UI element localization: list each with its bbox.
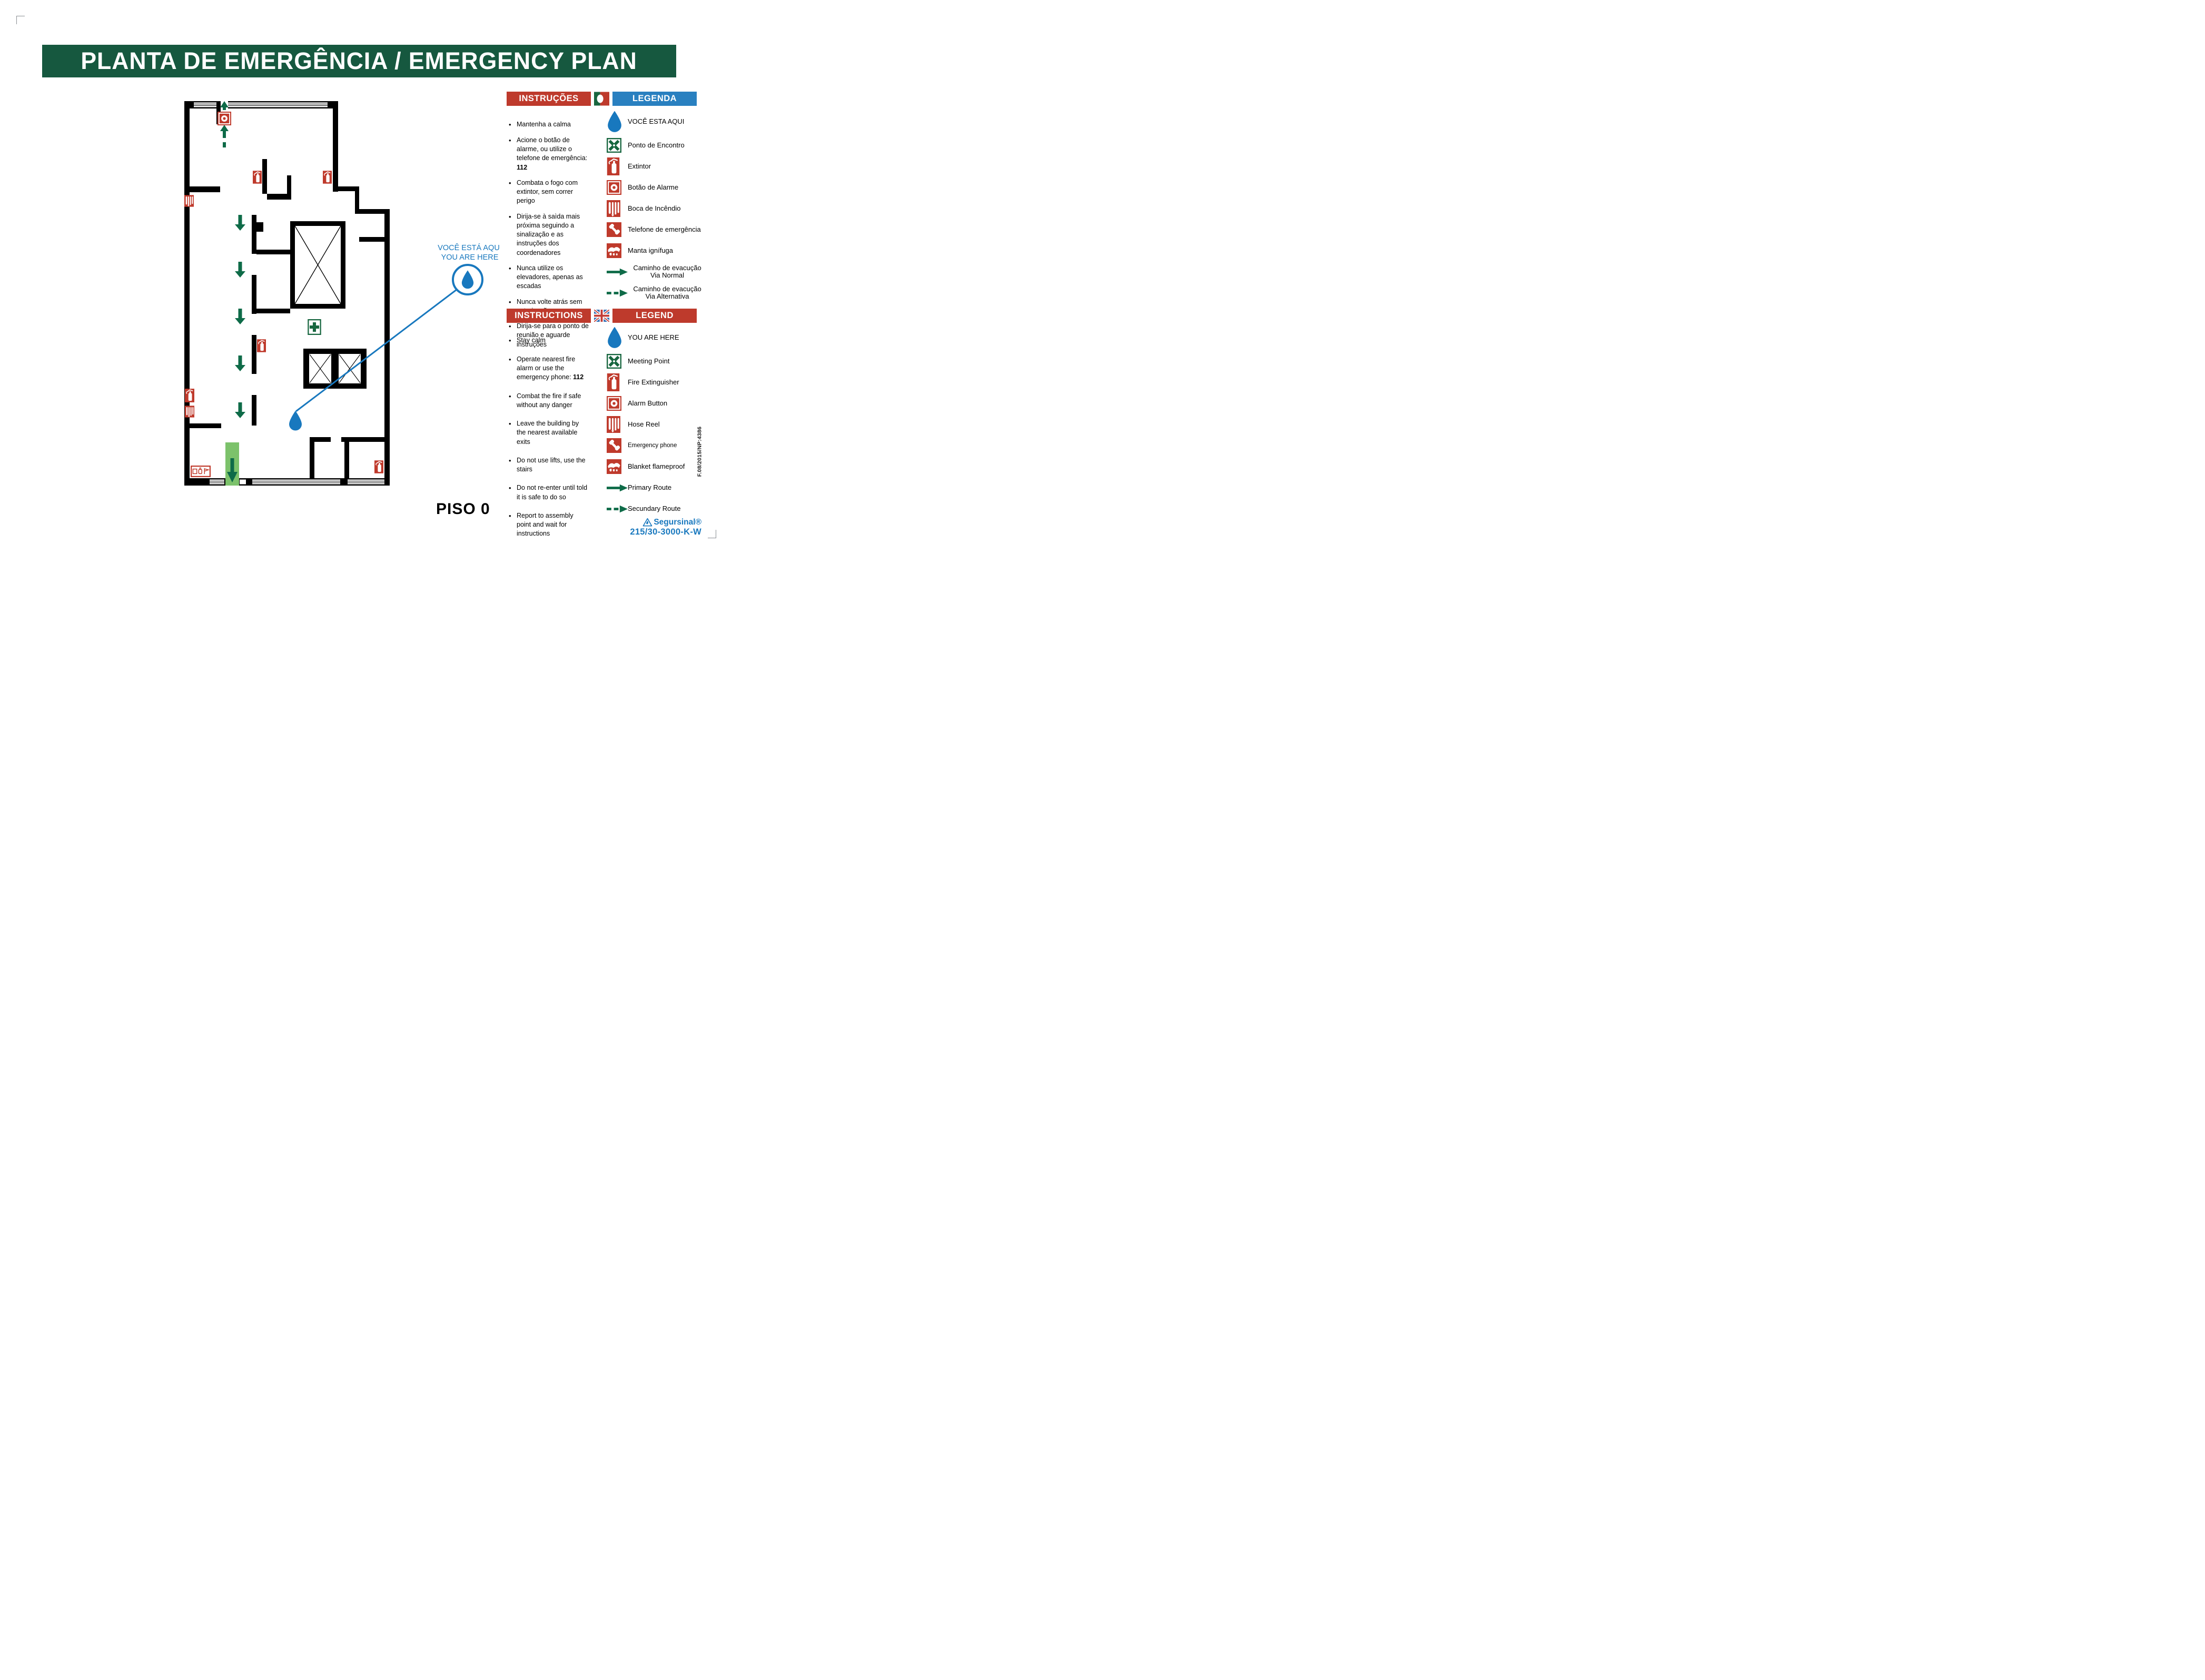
meeting-point-icon	[607, 138, 621, 153]
instruction-text: Operate nearest fire alarm or use the em…	[517, 355, 589, 382]
legend-item: Secundary Route	[607, 498, 720, 519]
fire-extinguisher-icon	[374, 460, 383, 473]
instruction-item: •Mantenha a calma	[509, 120, 589, 130]
meeting-point-icon	[607, 354, 621, 369]
en-legend-banner: LEGEND	[612, 309, 697, 323]
brand-model: 215/30-3000-K-W	[594, 527, 701, 537]
legend-label: YOU ARE HERE	[628, 334, 679, 341]
legend-item: Ponto de Encontro	[607, 135, 720, 156]
legend-label: Manta ignífuga	[628, 247, 673, 254]
legend-item: Extintor	[607, 156, 720, 177]
portugal-flag-icon	[594, 92, 609, 106]
you-are-here-drop-icon	[607, 326, 622, 349]
route-dashed-arrow-icon	[607, 289, 628, 298]
legend-item: Telefone de emergência	[607, 219, 720, 240]
legend-label: Primary Route	[628, 484, 671, 491]
fire-extinguisher-icon	[607, 373, 620, 391]
fire-blanket-icon	[607, 243, 621, 258]
brand-block: Segursinal® 215/30-3000-K-W	[594, 518, 701, 537]
hose-reel-icon	[185, 406, 194, 417]
pt-instructions-banner: INSTRUÇÕES	[507, 92, 591, 106]
fire-extinguisher-icon	[607, 157, 620, 175]
document-code: F.08/2015/NP:4386	[697, 407, 705, 497]
crop-mark-bottom-right	[708, 530, 716, 538]
instruction-text: Acione o botão de alarme, ou utilize o t…	[517, 136, 589, 172]
segursinal-logo-icon	[642, 518, 652, 527]
you-are-here-marker	[289, 411, 302, 431]
legend-item: Botão de Alarme	[607, 177, 720, 198]
legend-item: Caminho de evacuçãoVia Normal	[607, 261, 720, 282]
crop-mark-top-left	[16, 16, 25, 24]
callout-line1: VOCÊ ESTÁ AQUI	[438, 243, 500, 252]
route-solid-arrow-icon	[607, 268, 628, 276]
legend-label: Alarm Button	[628, 400, 667, 407]
legend-label: Secundary Route	[628, 505, 680, 512]
you-are-here-drop-icon	[607, 110, 622, 133]
legend-label: Meeting Point	[628, 358, 670, 365]
en-instructions-list: •Stay calm•Operate nearest fire alarm or…	[509, 336, 589, 548]
instruction-item: •Stay calm	[509, 336, 589, 345]
instruction-item: •Operate nearest fire alarm or use the e…	[509, 355, 589, 382]
instruction-item: •Combata o fogo com extintor, sem correr…	[509, 179, 589, 206]
instruction-item: •Report to assembly point and wait for i…	[509, 511, 589, 539]
bullet-dot: •	[509, 511, 517, 539]
elevator-icon	[338, 353, 361, 384]
en-instructions-banner: INSTRUCTIONS	[507, 309, 591, 323]
bullet-dot: •	[509, 120, 517, 130]
emergency-phone-icon	[607, 438, 621, 453]
legend-item: Manta ignífuga	[607, 240, 720, 261]
hose-reel-icon	[607, 200, 620, 217]
legend-item: Boca de Incêndio	[607, 198, 720, 219]
instruction-item: •Do not re-enter until told it is safe t…	[509, 483, 589, 502]
you-are-here-callout: VOCÊ ESTÁ AQUI YOU ARE HERE	[289, 243, 500, 431]
floor-label: PISO 0	[436, 500, 490, 518]
instruction-item: •Leave the building by the nearest avail…	[509, 419, 589, 447]
fire-extinguisher-icon	[257, 339, 266, 352]
route-solid-arrow-icon	[607, 483, 628, 492]
route-down-arrow-icon	[235, 262, 245, 278]
legend-label: Boca de Incêndio	[628, 205, 680, 212]
instruction-text: Do not use lifts, use the stairs	[517, 456, 589, 475]
legend-label: Blanket flameproof	[628, 463, 685, 470]
instruction-text: Nunca utilize os elevadores, apenas as e…	[517, 264, 589, 291]
legend-label: Emergency phone	[628, 442, 677, 449]
evacuation-route-arrows	[220, 101, 245, 482]
fire-extinguisher-icon	[185, 389, 194, 402]
emergency-plan-poster: PLANTA DE EMERGÊNCIA / EMERGENCY PLAN IN…	[0, 0, 735, 560]
instruction-text: Combat the fire if safe without any dang…	[517, 392, 589, 410]
instruction-text: Do not re-enter until told it is safe to…	[517, 483, 589, 502]
legend-label: Caminho de evacuçãoVia Normal	[628, 264, 707, 280]
legend-label: Botão de Alarme	[628, 184, 678, 191]
alarm-button-icon	[607, 180, 621, 195]
instruction-text: Report to assembly point and wait for in…	[517, 511, 589, 539]
instruction-text: Stay calm	[517, 336, 546, 345]
equipment-sign-icon	[191, 466, 210, 477]
route-down-arrow-icon	[235, 402, 245, 418]
bullet-dot: •	[509, 336, 517, 345]
instruction-text: Combata o fogo com extintor, sem correr …	[517, 179, 589, 206]
title-banner: PLANTA DE EMERGÊNCIA / EMERGENCY PLAN	[42, 45, 676, 77]
route-down-arrow-icon	[235, 309, 245, 324]
alarm-button-icon	[217, 112, 231, 125]
windows-top	[194, 101, 328, 124]
instruction-item: •Do not use lifts, use the stairs	[509, 456, 589, 475]
pt-legend-banner: LEGENDA	[612, 92, 697, 106]
legend-label: VOCÊ ESTA AQUI	[628, 118, 684, 125]
hose-reel-icon	[184, 195, 194, 206]
instruction-item: •Dirija-se à saìda mais próxima seguindo…	[509, 212, 589, 258]
emergency-phone-icon	[607, 222, 621, 237]
brand-name: Segursinal®	[654, 518, 701, 527]
bullet-dot: •	[509, 419, 517, 447]
legend-item: YOU ARE HERE	[607, 324, 720, 351]
legend-label: Hose Reel	[628, 421, 660, 428]
route-down-arrow-icon	[235, 355, 245, 371]
bullet-dot: •	[509, 392, 517, 410]
fire-extinguisher-icon	[253, 171, 262, 183]
first-aid-icon	[308, 320, 320, 334]
bullet-dot: •	[509, 136, 517, 172]
legend-item: VOCÊ ESTA AQUI	[607, 108, 720, 135]
hose-reel-icon	[607, 416, 620, 433]
pt-legend-list: VOCÊ ESTA AQUIPonto de EncontroExtintorB…	[607, 108, 720, 303]
route-down-arrow-icon	[235, 215, 245, 231]
callout-line2: YOU ARE HERE	[441, 253, 499, 262]
floor-plan: VOCÊ ESTÁ AQUI YOU ARE HERE	[177, 96, 500, 527]
bullet-dot: •	[509, 179, 517, 206]
legend-item: Fire Extinguisher	[607, 372, 720, 393]
stairwell	[295, 226, 341, 304]
instruction-item: •Acione o botão de alarme, ou utilize o …	[509, 136, 589, 172]
route-dashed-arrow-icon	[607, 505, 628, 513]
bullet-dot: •	[509, 456, 517, 475]
elevator-icon	[309, 353, 332, 384]
instruction-text: Dirija-se à saìda mais próxima seguindo …	[517, 212, 589, 258]
legend-item: Meeting Point	[607, 351, 720, 372]
legend-label: Ponto de Encontro	[628, 142, 685, 149]
fire-extinguisher-icon	[323, 171, 332, 183]
uk-flag-icon	[594, 309, 609, 323]
bullet-dot: •	[509, 212, 517, 258]
bullet-dot: •	[509, 483, 517, 502]
bullet-dot: •	[509, 264, 517, 291]
legend-label: Extintor	[628, 163, 651, 170]
bullet-dot: •	[509, 355, 517, 382]
walls	[184, 101, 390, 486]
page-title: PLANTA DE EMERGÊNCIA / EMERGENCY PLAN	[81, 47, 637, 75]
instruction-text: Mantenha a calma	[517, 120, 571, 130]
fire-blanket-icon	[607, 459, 621, 474]
route-up-arrow-icon	[220, 125, 229, 131]
instruction-item: •Nunca utilize os elevadores, apenas as …	[509, 264, 589, 291]
legend-item: Caminho de evacuçãoVia Alternativa	[607, 282, 720, 303]
instruction-text: Leave the building by the nearest availa…	[517, 419, 589, 447]
instruction-item: •Combat the fire if safe without any dan…	[509, 392, 589, 410]
legend-label: Caminho de evacuçãoVia Alternativa	[628, 285, 707, 301]
alarm-button-icon	[607, 396, 621, 411]
legend-label: Fire Extinguisher	[628, 379, 679, 386]
legend-label: Telefone de emergência	[628, 226, 701, 233]
